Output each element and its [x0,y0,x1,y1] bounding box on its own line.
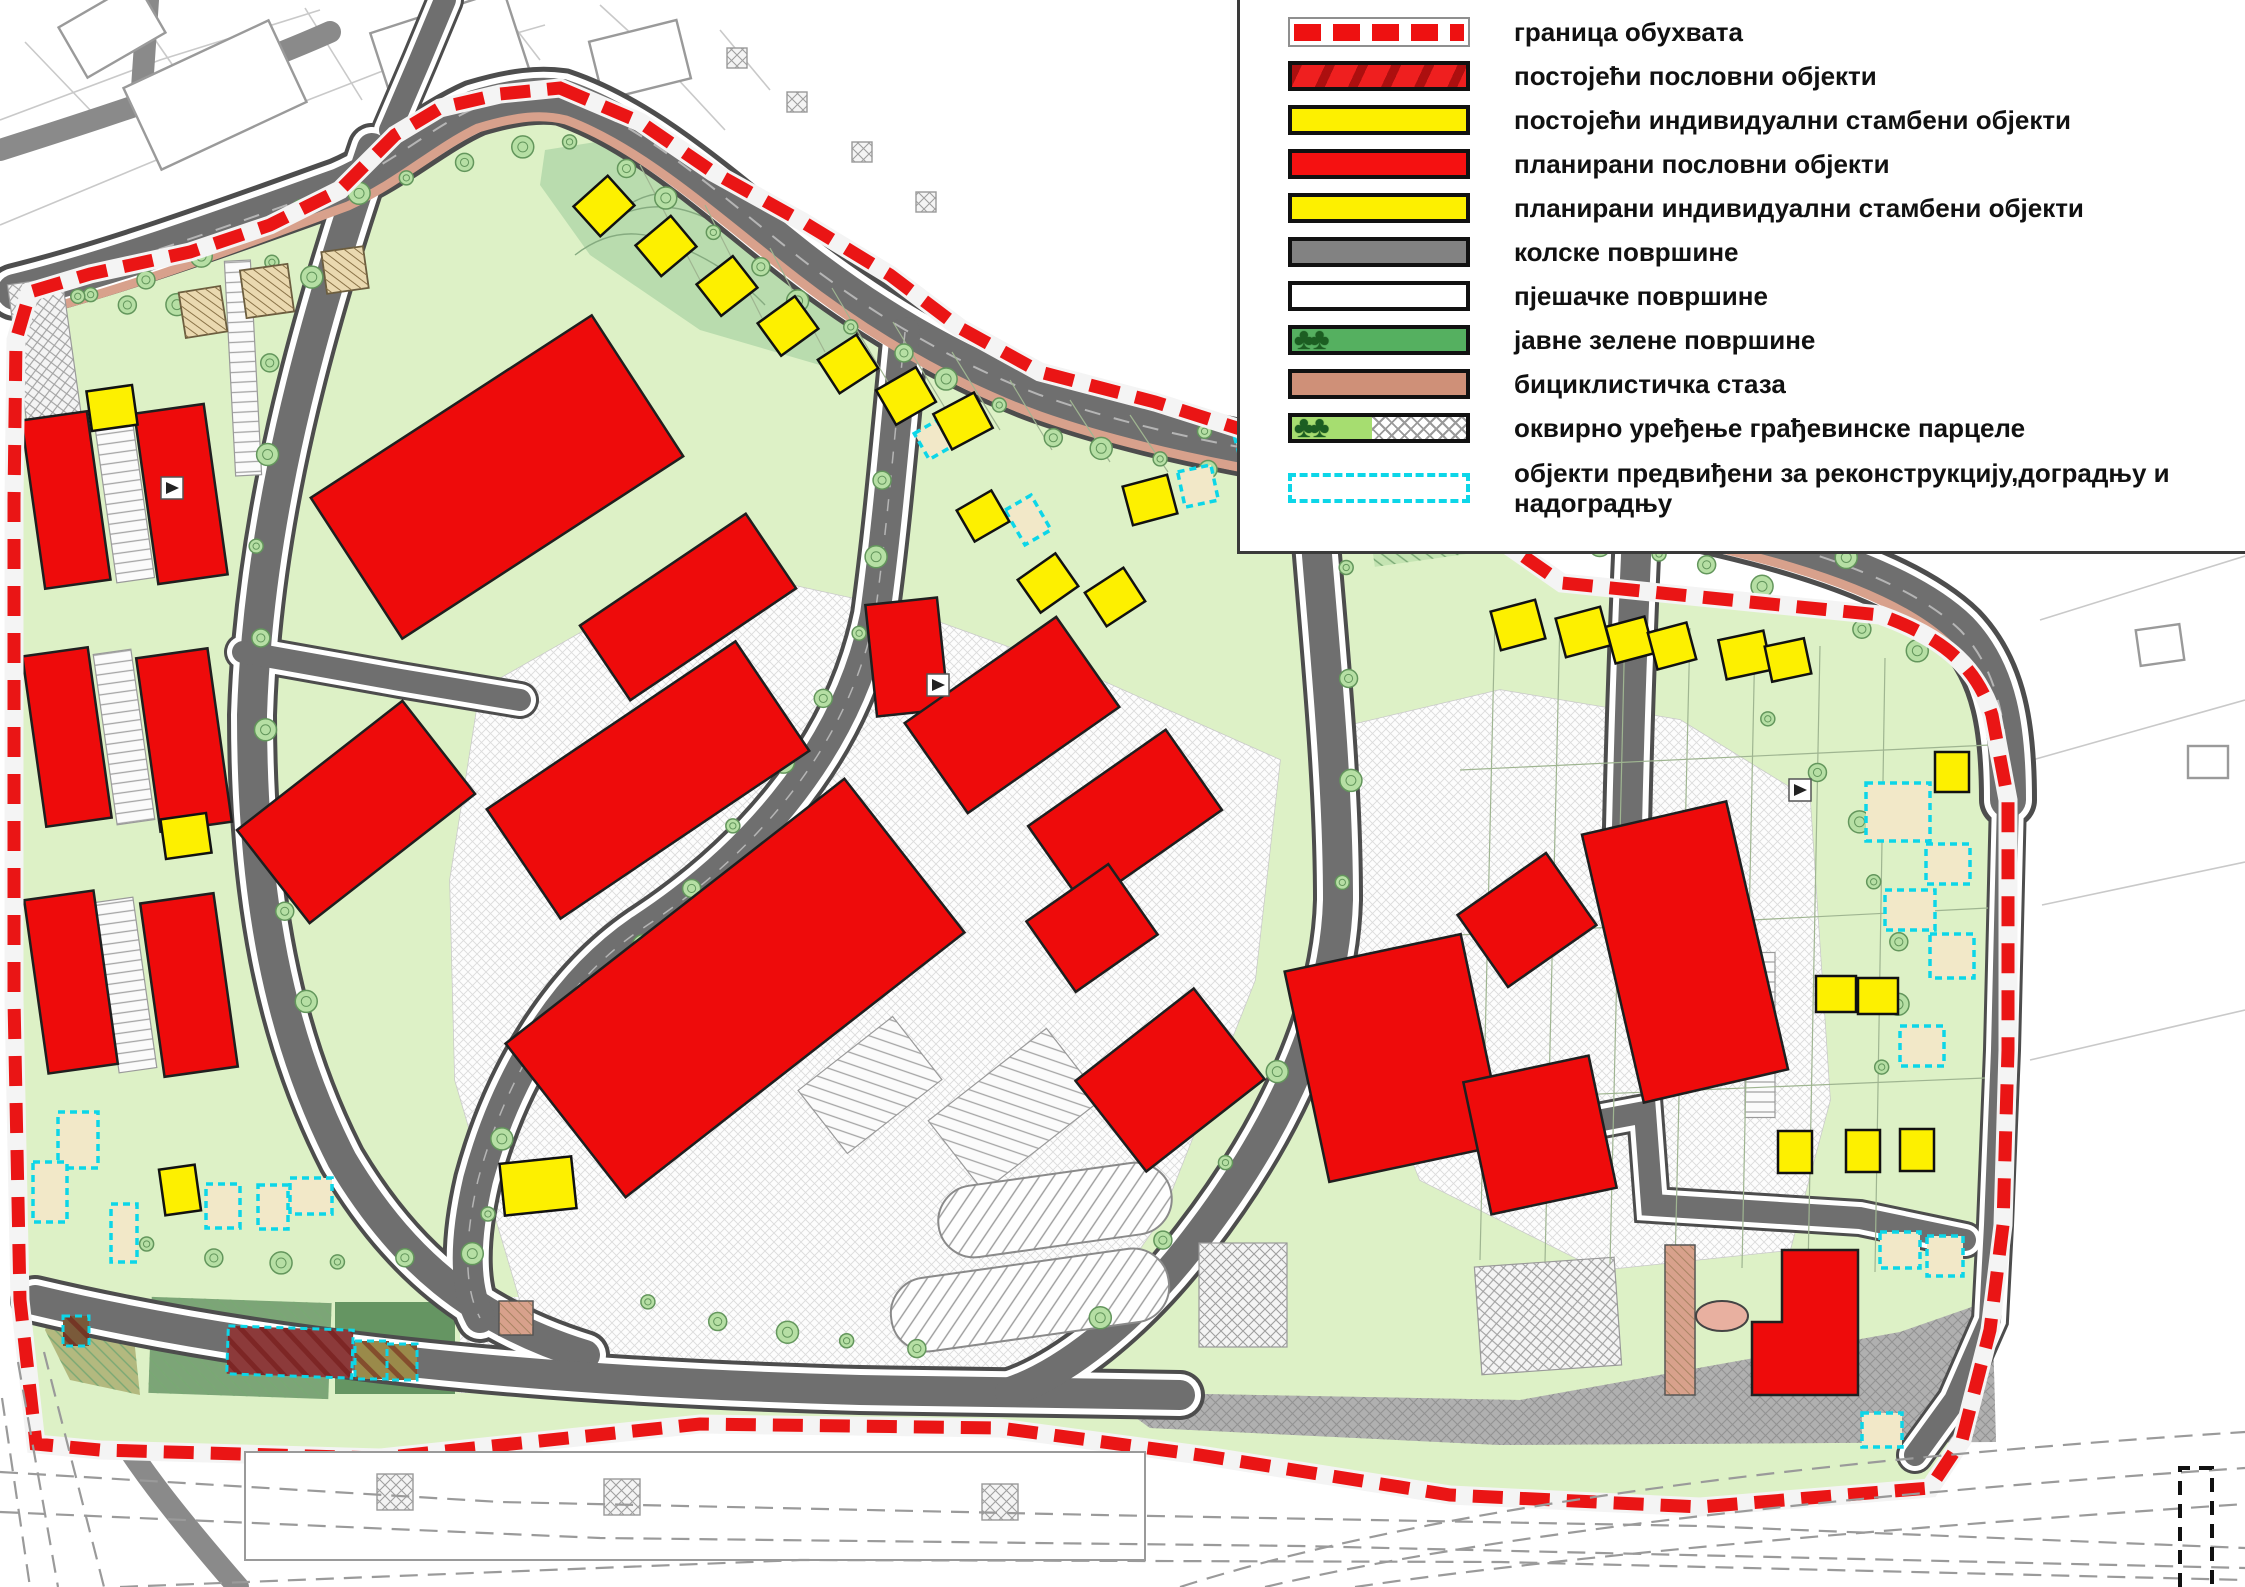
tree-icon [396,1249,414,1267]
outside-building [2188,746,2228,778]
outside-structure [916,192,936,212]
tree-icon [276,902,294,920]
legend-label: граница обухвата [1514,17,1743,47]
tree-icon [1153,452,1167,466]
tree-icon [257,443,279,465]
outside-structure [604,1479,640,1515]
legend-item-parcel-arrangement: ♣♣оквирно уређење грађевинске парцеле [1288,406,2231,450]
building-planned-business [1463,1056,1616,1215]
building-residential [1718,631,1771,680]
tree-icon [295,990,317,1012]
building-residential [1900,1129,1934,1171]
legend-item-existing-business: постојећи пословни објекти [1288,54,2231,98]
building-residential [1935,752,1969,792]
tree-icon [252,629,270,647]
building-residential [1765,638,1812,682]
outside-structure [727,48,747,68]
tree-icon [1089,1307,1111,1329]
tree-icon [84,288,98,302]
legend-label: бициклистичка стаза [1514,369,1786,399]
legend-label: пјешачке површине [1514,281,1768,311]
legend-panel: граница обухватапостојећи пословни објек… [1237,0,2245,554]
tree-icon [118,296,136,314]
building-reconstruction [258,1185,288,1229]
outside-building [2136,624,2185,666]
tree-icon [776,1321,798,1343]
tree-icon [1340,669,1358,687]
tree-icon [844,320,858,334]
tree-icon [301,266,323,288]
building-existing-residential-hatch [240,264,294,318]
tree-icon [752,258,770,276]
building-reconstruction [58,1112,98,1168]
legend-swatch-planned-residential [1288,193,1470,223]
legend-label: јавне зелене површине [1514,325,1815,355]
legend-swatch-bike-path [1288,369,1470,399]
tree-icon [1218,1156,1232,1170]
tree-icon [655,187,677,209]
building-residential [160,813,211,859]
tree-icon [852,626,866,640]
tree-icon [706,225,720,239]
tree-icon [461,1243,483,1265]
building-reconstruction [1885,890,1935,930]
tree-icon [709,1313,727,1331]
legend-label: постојећи индивидуални стамбени објекти [1514,105,2071,135]
legend-label: објекти предвиђени за реконструкцију,дог… [1514,458,2214,518]
legend-item-road: колске површине [1288,230,2231,274]
tree-icon [992,398,1006,412]
building-residential [159,1165,201,1216]
legend-swatch-road [1288,237,1470,267]
outside-structure [787,92,807,112]
tree-icon [1698,556,1716,574]
legend-item-planned-residential: планирани индивидуални стамбени објекти [1288,186,2231,230]
building-existing-business-hatch [387,1344,417,1380]
building-residential [86,385,137,431]
tree-icon [249,539,263,553]
legend-item-planned-business: планирани пословни објекти [1288,142,2231,186]
bike-structure-hatch [1665,1245,1695,1395]
parking-grid [1474,1257,1621,1375]
bike-structure [1696,1301,1748,1331]
legend-label: постојећи пословни објекти [1514,61,1877,91]
tree-icon [563,135,577,149]
building-residential [1846,1130,1880,1172]
building-reconstruction [1880,1232,1920,1268]
tree-icon: ♣♣ [1294,325,1325,355]
tree-icon [330,1255,344,1269]
tree-icon [140,1237,154,1251]
legend-item-public-green: ♣♣јавне зелене површине [1288,318,2231,362]
building-reconstruction [290,1178,332,1214]
outside-structure [982,1484,1018,1520]
tree-icon [840,1334,854,1348]
building-reconstruction [1900,1026,1944,1066]
legend-swatch-public-green: ♣♣ [1288,325,1470,355]
tree-icon [1340,769,1362,791]
legend-swatch-parcel-arrangement: ♣♣ [1288,413,1470,443]
building-existing-business-hatch [63,1316,89,1346]
tree-icon [1154,1231,1172,1249]
tree-icon [908,1340,926,1358]
building-residential [1816,976,1856,1012]
tree-icon [270,1252,292,1274]
tree-icon [1090,437,1112,459]
building-reconstruction [1862,1413,1902,1447]
tree-icon [1266,1061,1288,1083]
legend-swatch-pedestrian [1288,281,1470,311]
tree-icon [399,171,413,185]
tree-icon [814,689,832,707]
legend-swatch-reconstruction [1288,473,1470,503]
tree-icon: ♣♣ [1294,413,1325,443]
tree-icon [895,344,913,362]
tree-icon [935,368,957,390]
legend-swatch-boundary [1288,17,1470,47]
building-planned-business [865,598,948,717]
tree-icon [617,160,635,178]
tree-icon [254,719,276,741]
tree-icon [1044,429,1062,447]
building-reconstruction [1926,844,1970,884]
legend-item-pedestrian: пјешачке површине [1288,274,2231,318]
legend-item-reconstruction: објекти предвиђени за реконструкцију,дог… [1288,450,2231,526]
tree-icon [1890,933,1908,951]
parking-grid [1199,1243,1287,1347]
legend-label: планирани пословни објекти [1514,149,1890,179]
legend-item-existing-residential: постојећи индивидуални стамбени објекти [1288,98,2231,142]
building-existing-business-hatch [355,1341,389,1379]
legend-swatch-existing-business [1288,61,1470,91]
building-existing-residential-hatch [179,286,228,338]
outside-structure [852,142,872,162]
tree-icon [491,1128,513,1150]
tree-icon [873,471,891,489]
site-plan-screenshot: граница обухватапостојећи пословни објек… [0,0,2245,1587]
building-existing-business-hatch [227,1326,354,1378]
building-reconstruction [33,1162,67,1222]
building-reconstruction [1178,465,1219,507]
tree-icon [205,1249,223,1267]
outside-structure [377,1474,413,1510]
legend-swatch-existing-residential [1288,105,1470,135]
building-reconstruction [206,1184,240,1228]
bike-structure-hatch [499,1301,533,1335]
tree-icon [1867,875,1881,889]
tree-icon [1339,560,1353,574]
building-residential [499,1156,576,1215]
building-reconstruction [1930,934,1974,978]
legend-item-bike-path: бициклистичка стаза [1288,362,2231,406]
tree-icon [456,153,474,171]
tree-icon [726,819,740,833]
tree-icon [865,546,887,568]
building-reconstruction [111,1204,137,1262]
tree-icon [1335,875,1349,889]
tree-icon [1761,712,1775,726]
tree-icon [137,271,155,289]
building-existing-residential-hatch [321,246,368,293]
tree-icon [512,136,534,158]
building-residential [1858,978,1898,1014]
building-residential [1778,1131,1812,1173]
tree-icon [71,289,85,303]
tree-icon [641,1295,655,1309]
legend-item-boundary: граница обухвата [1288,10,2231,54]
legend-label: планирани индивидуални стамбени објекти [1514,193,2084,223]
building-reconstruction [1866,783,1930,841]
legend-label: колске површине [1514,237,1739,267]
legend-label: оквирно уређење грађевинске парцеле [1514,413,2025,443]
tree-icon [481,1207,495,1221]
legend-swatch-planned-business [1288,149,1470,179]
tree-icon [1875,1060,1889,1074]
tree-icon [261,354,279,372]
building-reconstruction [1927,1236,1963,1276]
